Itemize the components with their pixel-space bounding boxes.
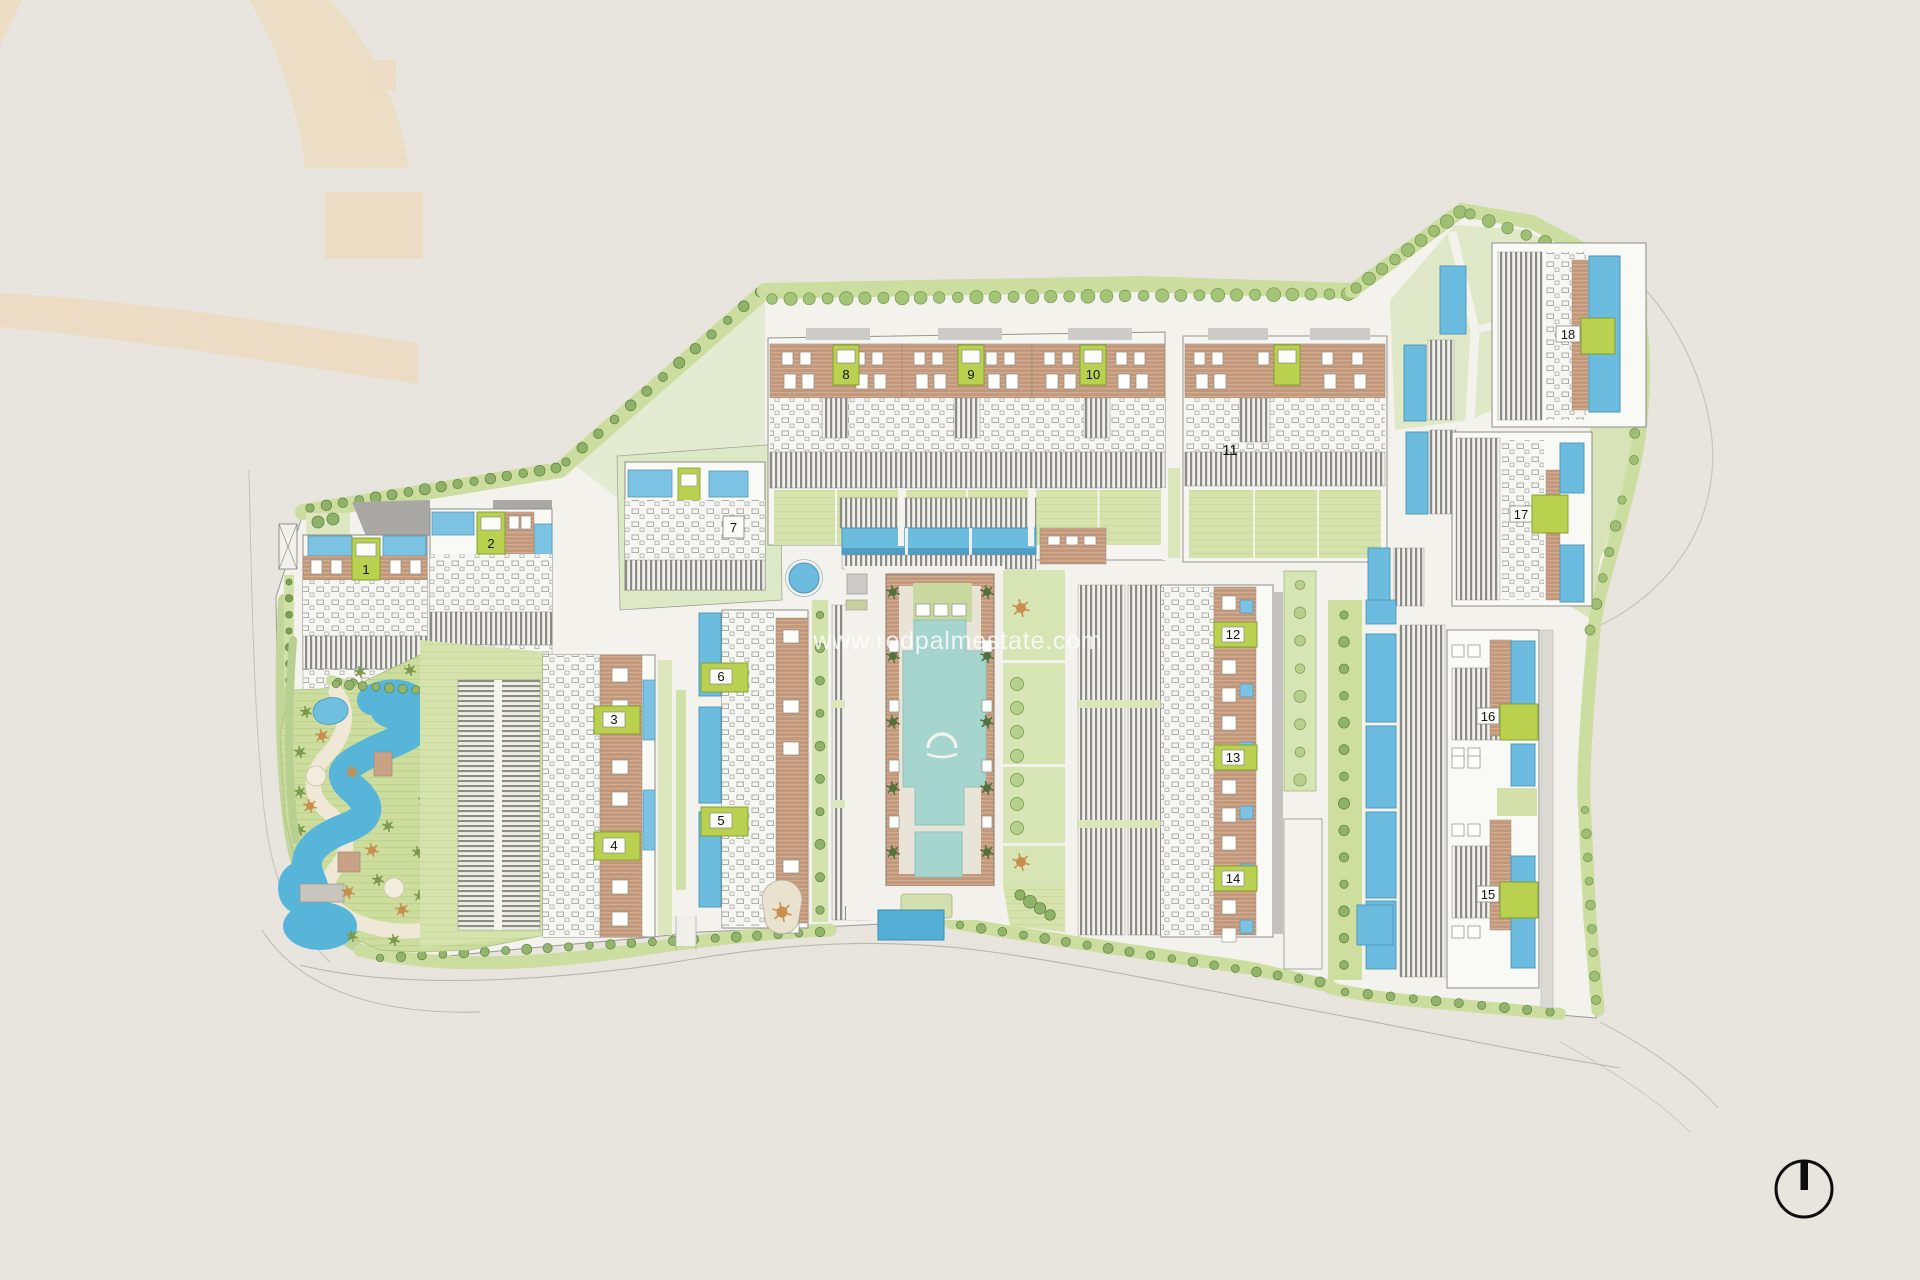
svg-text:5: 5 — [717, 813, 724, 828]
svg-text:18: 18 — [1561, 327, 1575, 342]
svg-text:13: 13 — [1226, 750, 1240, 765]
svg-text:16: 16 — [1481, 709, 1495, 724]
svg-text:10: 10 — [1086, 367, 1100, 382]
svg-text:11: 11 — [1222, 442, 1238, 459]
svg-text:1: 1 — [362, 562, 369, 577]
svg-text:2: 2 — [487, 536, 494, 551]
svg-text:4: 4 — [610, 838, 617, 853]
svg-text:8: 8 — [842, 367, 849, 382]
svg-text:6: 6 — [717, 669, 724, 684]
svg-text:12: 12 — [1226, 627, 1240, 642]
svg-text:7: 7 — [730, 520, 737, 535]
svg-text:9: 9 — [967, 367, 974, 382]
svg-text:15: 15 — [1481, 887, 1495, 902]
svg-text:3: 3 — [610, 712, 617, 727]
svg-text:14: 14 — [1226, 871, 1240, 886]
svg-text:www.redpalmestate.com: www.redpalmestate.com — [812, 627, 1102, 655]
svg-text:17: 17 — [1514, 507, 1528, 522]
